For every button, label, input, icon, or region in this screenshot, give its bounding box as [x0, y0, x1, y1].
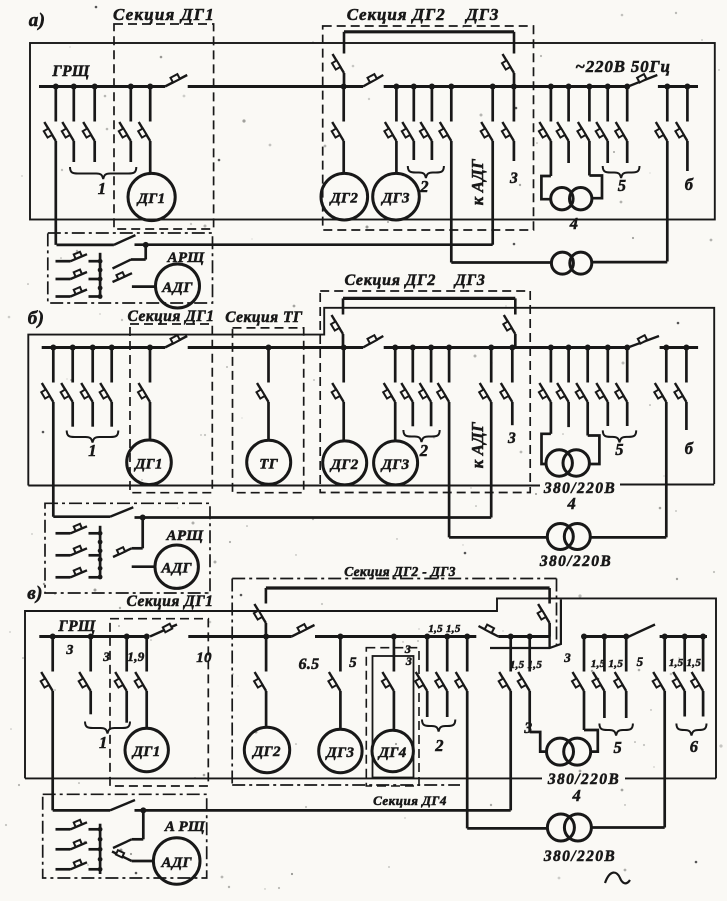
svg-text:АДГ: АДГ: [160, 561, 192, 577]
svg-text:1: 1: [98, 179, 107, 198]
svg-text:Секция ДГ1: Секция ДГ1: [128, 308, 215, 325]
svg-text:2: 2: [419, 177, 429, 196]
svg-text:к АДГ: к АДГ: [468, 158, 487, 205]
svg-text:6.5: 6.5: [299, 656, 320, 673]
svg-text:1: 1: [99, 733, 108, 752]
svg-text:ДГ1: ДГ1: [131, 744, 161, 760]
svg-text:Секция ДГ2 - ДГ3: Секция ДГ2 - ДГ3: [344, 564, 456, 579]
svg-text:б: б: [685, 175, 694, 194]
svg-text:5: 5: [614, 738, 623, 757]
svg-text:1,5 1,5: 1,5 1,5: [428, 623, 461, 635]
svg-text:ДГ3: ДГ3: [380, 457, 410, 473]
svg-text:3: 3: [563, 650, 571, 665]
svg-text:в): в): [27, 583, 42, 604]
svg-text:ГРЩ: ГРЩ: [51, 63, 89, 80]
svg-text:5: 5: [618, 176, 627, 195]
svg-text:1,9: 1,9: [127, 649, 144, 664]
svg-text:1: 1: [88, 441, 97, 460]
svg-text:АРЩ: АРЩ: [166, 528, 205, 544]
svg-text:10: 10: [196, 650, 212, 666]
svg-text:а): а): [29, 10, 45, 31]
svg-text:ДГ3: ДГ3: [380, 191, 410, 207]
svg-text:4: 4: [572, 786, 582, 805]
svg-text:АДГ: АДГ: [160, 855, 192, 871]
svg-text:380/220В: 380/220В: [547, 771, 620, 788]
svg-text:3: 3: [102, 649, 110, 664]
svg-text:2: 2: [419, 441, 429, 460]
svg-text:5: 5: [637, 654, 644, 669]
svg-text:3: 3: [507, 430, 516, 447]
svg-text:3: 3: [523, 720, 532, 737]
svg-text:4: 4: [569, 214, 579, 233]
svg-text:ГРЩ: ГРЩ: [57, 618, 95, 635]
svg-text:380/220В: 380/220В: [543, 848, 616, 865]
svg-text:6: 6: [690, 737, 699, 756]
svg-text:1,5 1,5: 1,5 1,5: [591, 658, 624, 670]
svg-text:ДГ1: ДГ1: [133, 456, 163, 472]
svg-text:ДГ1: ДГ1: [136, 191, 166, 207]
svg-text:Секция ДГ1: Секция ДГ1: [127, 593, 214, 610]
svg-text:к АДГ: к АДГ: [468, 421, 487, 468]
svg-text:б): б): [28, 308, 44, 329]
svg-text:Секция ТГ: Секция ТГ: [225, 309, 303, 326]
svg-text:~220В 50Гц: ~220В 50Гц: [575, 57, 671, 76]
svg-text:380/220В: 380/220В: [543, 480, 616, 497]
svg-text:ДГ2: ДГ2: [251, 744, 281, 760]
svg-text:1,5 1,5: 1,5 1,5: [669, 657, 702, 669]
svg-text:АДГ: АДГ: [161, 280, 193, 296]
svg-text:380/220В: 380/220В: [539, 553, 612, 570]
svg-text:ДГ3: ДГ3: [325, 745, 355, 761]
svg-text:4: 4: [567, 494, 577, 513]
svg-text:А РЩ: А РЩ: [164, 819, 206, 835]
svg-text:2: 2: [434, 736, 444, 755]
svg-text:Секция ДГ1: Секция ДГ1: [113, 5, 215, 24]
svg-text:Секция ДГ4: Секция ДГ4: [373, 793, 447, 808]
svg-text:1,5 1,5: 1,5 1,5: [510, 659, 543, 671]
svg-text:3: 3: [405, 654, 412, 668]
svg-text:б: б: [685, 439, 694, 458]
svg-text:ДГ2: ДГ2: [328, 191, 358, 207]
svg-text:ДГ2: ДГ2: [329, 457, 359, 473]
svg-text:5: 5: [615, 440, 624, 459]
svg-text:ТГ: ТГ: [259, 456, 278, 472]
svg-text:3: 3: [65, 643, 73, 658]
svg-text:Секция ДГ2 ДГ3: Секция ДГ2 ДГ3: [347, 5, 500, 24]
svg-text:5: 5: [349, 655, 357, 671]
svg-text:ДГ4: ДГ4: [377, 745, 407, 761]
svg-text:Секция ДГ2 ДГ3: Секция ДГ2 ДГ3: [344, 272, 485, 289]
svg-text:3: 3: [509, 170, 518, 187]
